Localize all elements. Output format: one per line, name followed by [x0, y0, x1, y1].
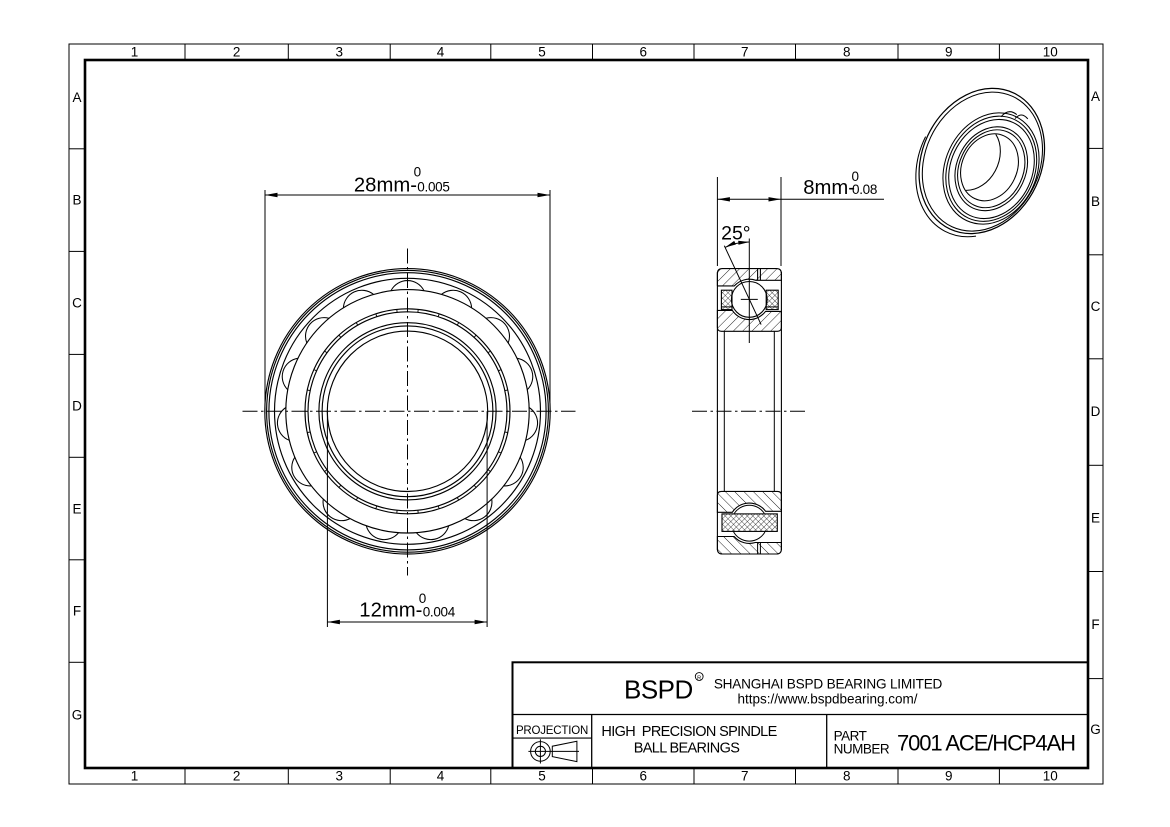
svg-text:25°: 25°: [721, 223, 751, 245]
svg-text:6: 6: [639, 769, 647, 784]
svg-text:2: 2: [233, 769, 241, 784]
svg-text:0.08: 0.08: [852, 182, 877, 197]
svg-text:10: 10: [1043, 45, 1058, 60]
svg-text:D: D: [1091, 404, 1101, 419]
svg-text:BALL BEARINGS: BALL BEARINGS: [634, 741, 739, 757]
svg-text:NUMBER: NUMBER: [834, 741, 890, 756]
svg-text:8: 8: [843, 769, 851, 784]
svg-text:6: 6: [639, 45, 647, 60]
svg-text:8mm-: 8mm-: [803, 177, 855, 199]
svg-text:7: 7: [741, 769, 749, 784]
svg-text:4: 4: [437, 769, 445, 784]
svg-text:1: 1: [131, 769, 139, 784]
svg-text:G: G: [72, 708, 83, 723]
svg-text:https://www.bspdbearing.com/: https://www.bspdbearing.com/: [737, 692, 917, 707]
svg-text:7: 7: [741, 45, 749, 60]
svg-text:9: 9: [945, 45, 953, 60]
svg-text:G: G: [1090, 722, 1101, 737]
svg-text:0.005: 0.005: [417, 180, 449, 195]
svg-text:0.004: 0.004: [423, 604, 456, 619]
svg-text:B: B: [1091, 194, 1100, 209]
svg-text:5: 5: [538, 769, 546, 784]
svg-text:F: F: [73, 604, 81, 619]
svg-text:28mm-: 28mm-: [354, 175, 417, 197]
svg-text:4: 4: [437, 45, 445, 60]
svg-text:PROJECTION: PROJECTION: [516, 725, 588, 737]
svg-text:0: 0: [414, 164, 422, 179]
svg-text:B: B: [72, 193, 81, 208]
svg-text:R: R: [697, 675, 701, 681]
svg-text:7001 ACE/HCP4AH: 7001 ACE/HCP4AH: [897, 731, 1075, 756]
svg-text:SHANGHAI BSPD BEARING LIMITED: SHANGHAI BSPD BEARING LIMITED: [714, 677, 943, 692]
svg-text:A: A: [1091, 89, 1100, 104]
svg-text:E: E: [72, 501, 81, 516]
svg-text:D: D: [72, 399, 82, 414]
svg-text:9: 9: [945, 769, 953, 784]
svg-text:BSPD: BSPD: [624, 674, 693, 704]
svg-text:10: 10: [1043, 769, 1058, 784]
svg-text:12mm-: 12mm-: [359, 599, 422, 621]
svg-text:3: 3: [335, 769, 343, 784]
svg-text:HIGH PRECISION SPINDLE: HIGH PRECISION SPINDLE: [601, 724, 777, 740]
svg-text:C: C: [72, 296, 82, 311]
svg-text:F: F: [1091, 617, 1099, 632]
svg-text:8: 8: [843, 45, 851, 60]
svg-text:2: 2: [233, 45, 241, 60]
svg-text:1: 1: [131, 45, 139, 60]
svg-text:C: C: [1091, 299, 1101, 314]
svg-text:3: 3: [335, 45, 343, 60]
svg-text:E: E: [1091, 511, 1100, 526]
svg-text:5: 5: [538, 45, 546, 60]
svg-text:A: A: [72, 90, 81, 105]
